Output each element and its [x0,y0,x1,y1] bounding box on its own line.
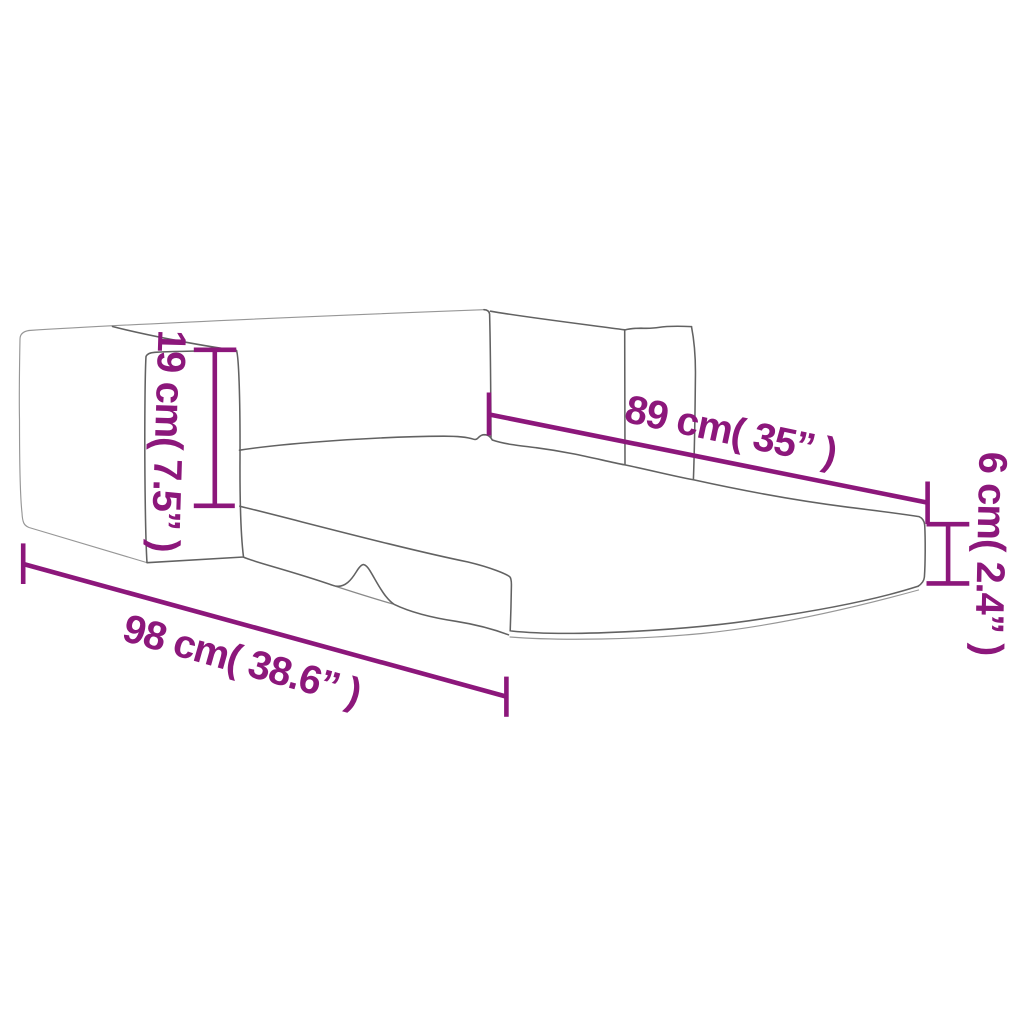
svg-text:6 cm( 2.4” ): 6 cm( 2.4” ) [966,451,1014,656]
svg-text:19 cm( 7.5” ): 19 cm( 7.5” ) [143,329,194,552]
